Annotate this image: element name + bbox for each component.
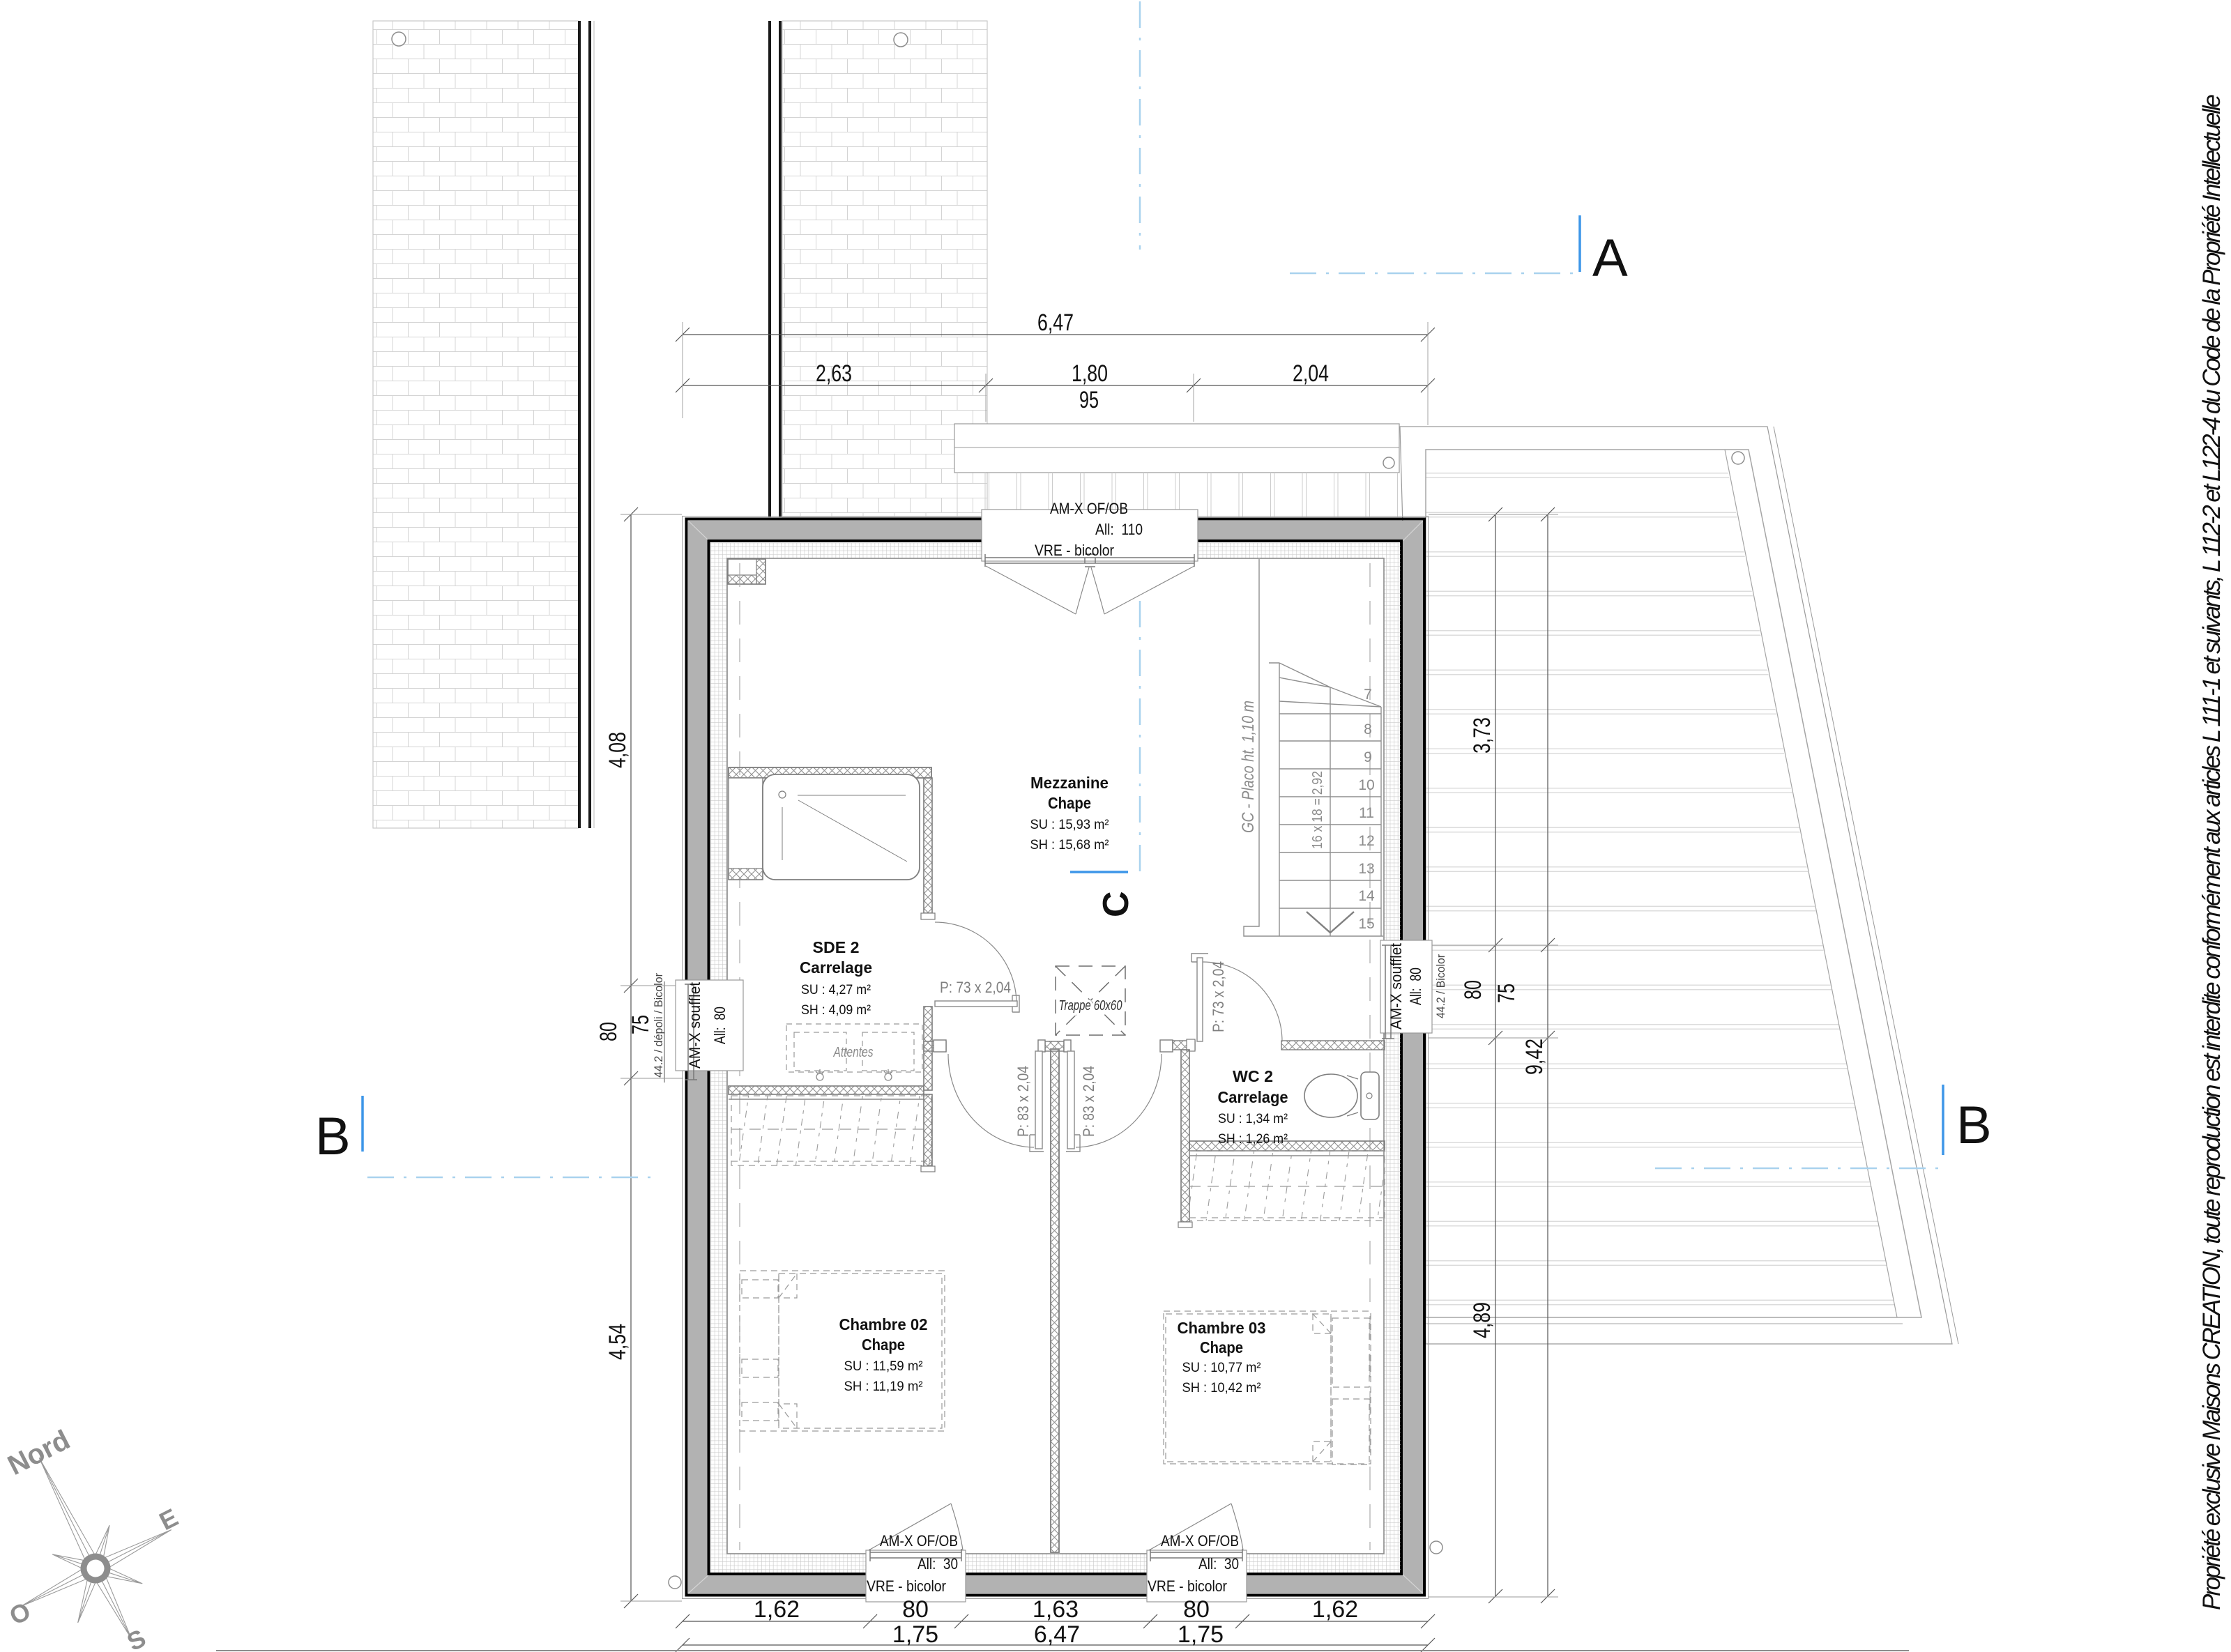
svg-text:9,42: 9,42	[1521, 1039, 1548, 1075]
svg-text:WC 2: WC 2	[1233, 1067, 1273, 1085]
svg-text:B: B	[315, 1107, 351, 1166]
svg-text:SU : 10,77 m²: SU : 10,77 m²	[1182, 1360, 1261, 1375]
svg-text:80: 80	[1183, 1596, 1210, 1623]
svg-text:6,47: 6,47	[1034, 1621, 1080, 1648]
svg-text:4,54: 4,54	[604, 1324, 631, 1360]
svg-text:Chape: Chape	[1200, 1338, 1243, 1356]
svg-text:1,75: 1,75	[892, 1621, 938, 1648]
svg-text:All: 30: All: 30	[917, 1555, 958, 1573]
svg-text:GC - Placo ht. 1,10 m: GC - Placo ht. 1,10 m	[1239, 701, 1258, 833]
svg-text:SH : 4,09 m²: SH : 4,09 m²	[801, 1002, 871, 1018]
svg-text:B: B	[1956, 1096, 1992, 1155]
svg-text:95: 95	[1079, 387, 1099, 413]
svg-text:2,63: 2,63	[816, 360, 852, 387]
svg-text:SU : 1,34 m²: SU : 1,34 m²	[1218, 1111, 1288, 1126]
svg-text:1,80: 1,80	[1072, 360, 1108, 387]
svg-text:SH : 11,19 m²: SH : 11,19 m²	[844, 1379, 923, 1394]
svg-text:SU : 11,59 m²: SU : 11,59 m²	[844, 1359, 923, 1374]
svg-text:1,75: 1,75	[1178, 1621, 1224, 1648]
svg-text:P: 73 x 2,04: P: 73 x 2,04	[1210, 961, 1227, 1032]
svg-text:8: 8	[1364, 721, 1372, 737]
svg-text:AM-X OF/OB: AM-X OF/OB	[1161, 1532, 1239, 1550]
svg-text:A: A	[1592, 229, 1628, 288]
svg-text:SH : 15,68 m²: SH : 15,68 m²	[1030, 837, 1109, 852]
svg-text:P: 83 x 2,04: P: 83 x 2,04	[1080, 1066, 1097, 1137]
svg-text:VRE - bicolor: VRE - bicolor	[1035, 542, 1114, 559]
svg-text:Trappe 60x60: Trappe 60x60	[1059, 998, 1122, 1014]
svg-text:44.2 / dépoli / Bicolor: 44.2 / dépoli / Bicolor	[652, 973, 665, 1078]
svg-text:Carrelage: Carrelage	[1218, 1088, 1288, 1106]
svg-text:75: 75	[1493, 984, 1520, 1003]
svg-text:Chambre 03: Chambre 03	[1178, 1319, 1266, 1337]
svg-text:P: 83 x 2,04: P: 83 x 2,04	[1014, 1066, 1032, 1137]
svg-text:All: 80: All: 80	[1407, 968, 1424, 1005]
svg-text:Chape: Chape	[862, 1336, 905, 1354]
svg-text:80: 80	[902, 1596, 929, 1623]
svg-text:SH : 1,26 m²: SH : 1,26 m²	[1218, 1131, 1288, 1147]
svg-text:10: 10	[1358, 777, 1374, 793]
svg-text:80: 80	[1460, 980, 1486, 1000]
svg-text:SU : 15,93 m²: SU : 15,93 m²	[1030, 817, 1109, 832]
svg-text:1,62: 1,62	[754, 1596, 800, 1623]
svg-text:Attentes: Attentes	[833, 1045, 874, 1060]
svg-text:14: 14	[1358, 888, 1375, 904]
svg-text:P: 73 x 2,04: P: 73 x 2,04	[940, 979, 1011, 996]
svg-text:C: C	[1096, 891, 1136, 917]
svg-text:Chape: Chape	[1048, 794, 1091, 812]
svg-text:All: 30: All: 30	[1198, 1555, 1239, 1573]
svg-text:All: 110: All: 110	[1095, 521, 1143, 538]
svg-text:12: 12	[1358, 833, 1374, 849]
svg-text:13: 13	[1358, 861, 1374, 877]
svg-text:6,47: 6,47	[1037, 309, 1074, 336]
svg-text:SDE 2: SDE 2	[813, 938, 860, 956]
svg-text:VRE - bicolor: VRE - bicolor	[1148, 1577, 1227, 1595]
svg-text:1,63: 1,63	[1033, 1596, 1079, 1623]
svg-text:15: 15	[1358, 916, 1374, 932]
svg-text:44.2 / Bicolor: 44.2 / Bicolor	[1434, 954, 1447, 1018]
svg-text:Mezzanine: Mezzanine	[1030, 774, 1109, 792]
svg-text:Chambre 02: Chambre 02	[839, 1315, 928, 1333]
svg-text:11: 11	[1359, 805, 1374, 821]
svg-text:2,04: 2,04	[1293, 360, 1329, 387]
svg-text:75: 75	[627, 1015, 654, 1034]
svg-text:SU : 4,27 m²: SU : 4,27 m²	[801, 982, 871, 997]
svg-text:3,73: 3,73	[1469, 717, 1495, 754]
svg-text:SH : 10,42 m²: SH : 10,42 m²	[1182, 1380, 1261, 1395]
svg-text:4,89: 4,89	[1469, 1302, 1495, 1338]
svg-text:7: 7	[1364, 687, 1372, 703]
svg-text:AM-X soufflet: AM-X soufflet	[1387, 943, 1405, 1030]
svg-text:Propriété exclusive Maisons CR: Propriété exclusive Maisons CREATION, to…	[2198, 94, 2225, 1610]
svg-text:All: 80: All: 80	[711, 1007, 729, 1044]
svg-text:Carrelage: Carrelage	[800, 958, 872, 977]
svg-text:16 x 18 = 2,92: 16 x 18 = 2,92	[1310, 771, 1325, 849]
svg-text:9: 9	[1364, 749, 1372, 765]
svg-text:VRE - bicolor: VRE - bicolor	[867, 1577, 946, 1595]
svg-text:AM-X soufflet: AM-X soufflet	[686, 982, 703, 1069]
svg-text:80: 80	[595, 1022, 622, 1041]
svg-text:4,08: 4,08	[604, 732, 631, 768]
svg-text:AM-X OF/OB: AM-X OF/OB	[880, 1532, 958, 1550]
svg-text:AM-X OF/OB: AM-X OF/OB	[1050, 500, 1128, 517]
svg-text:1,62: 1,62	[1312, 1596, 1358, 1623]
